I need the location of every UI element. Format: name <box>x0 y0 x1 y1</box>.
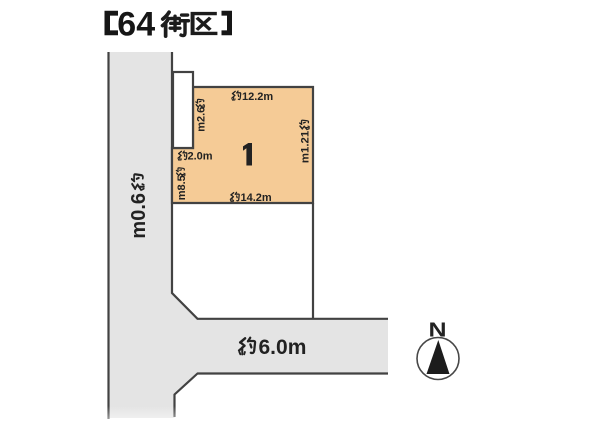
svg-text:2.0m: 2.0m <box>188 150 213 162</box>
svg-text:12.2m: 12.2m <box>242 91 273 103</box>
svg-text:m0.6: m0.6 <box>128 193 150 239</box>
svg-text:14.2m: 14.2m <box>241 192 272 204</box>
svg-text:m2.6: m2.6 <box>196 107 208 132</box>
svg-text:64: 64 <box>117 5 155 43</box>
svg-text:6.0m: 6.0m <box>259 336 307 359</box>
svg-text:m1.21: m1.21 <box>300 130 312 163</box>
svg-text:m8.5: m8.5 <box>176 175 188 200</box>
